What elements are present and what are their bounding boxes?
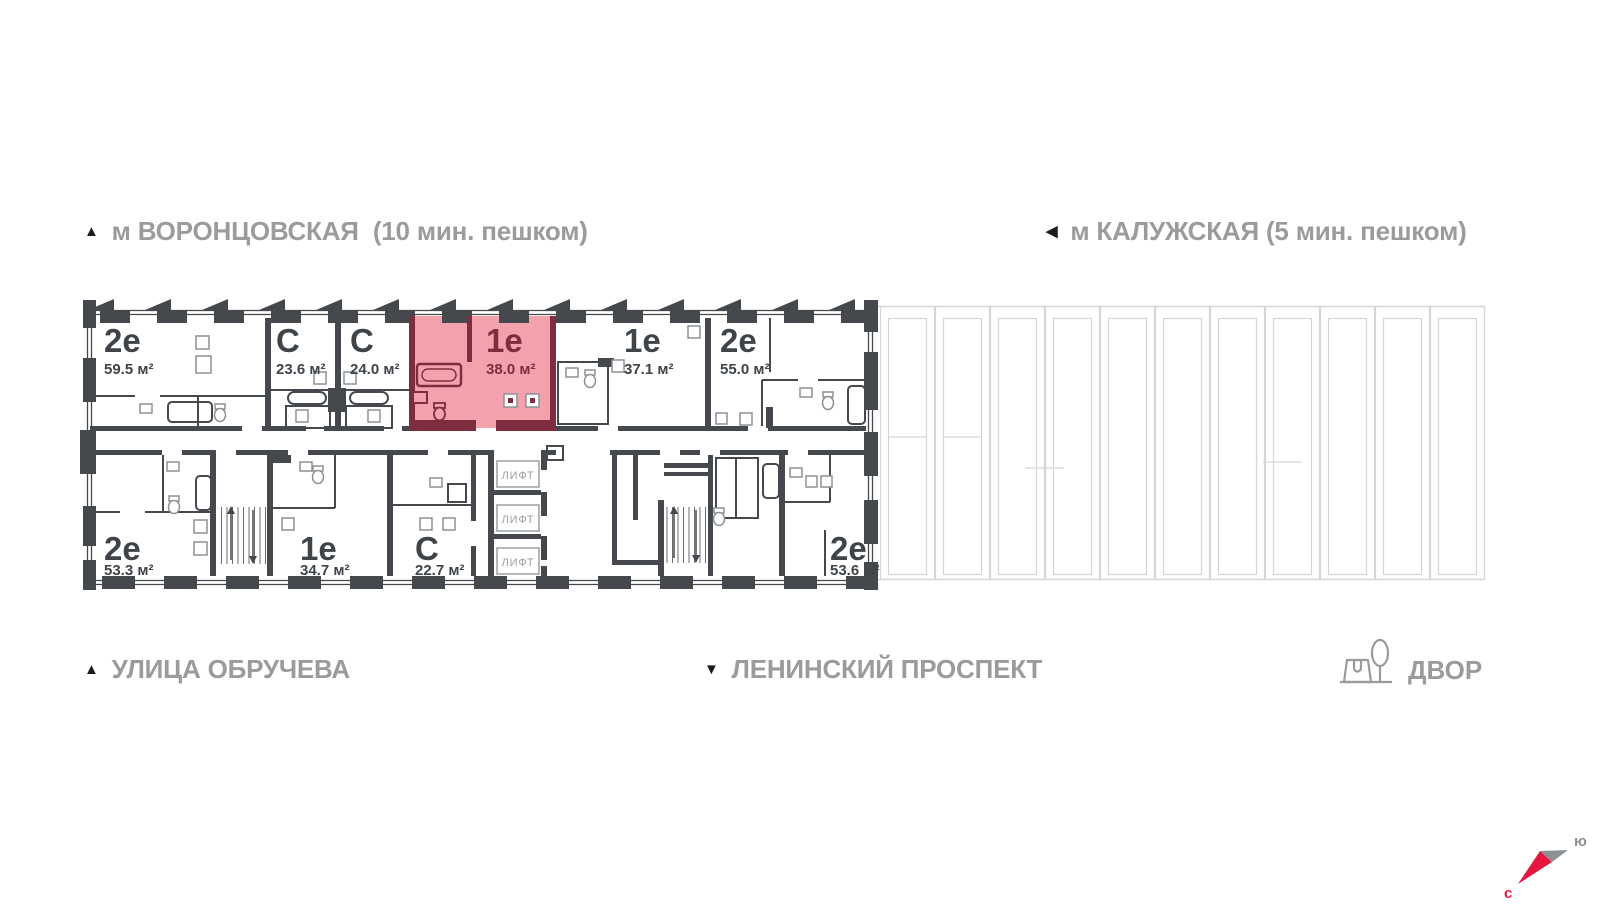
apartment-area: 55.0 м²: [720, 361, 769, 378]
adjacent-section-outline: [874, 306, 1485, 580]
staircase-left: [221, 506, 266, 564]
floorplan-page: ▲ м ВОРОНЦОВСКАЯ (10 мин. пешком) ◀ м КА…: [0, 0, 1600, 920]
apartment-type: 1е: [486, 322, 523, 359]
staircase-right: [664, 506, 707, 563]
apartment-type: С: [350, 322, 374, 359]
apartment-1e-34-7[interactable]: 1е 34.7 м²: [273, 455, 387, 579]
toilet-icon: [714, 508, 725, 526]
apartment-type: 1е: [624, 322, 661, 359]
apartment-area: 37.1 м²: [624, 361, 673, 378]
elevator-label: ЛИФТ: [502, 557, 535, 569]
apartment-2e-53-3[interactable]: 2е 53.3 м²: [92, 455, 210, 579]
floorplan-svg: ЛИФТ ЛИФТ ЛИФТ 2е 59.5 м² С 23.6 м² С 24…: [0, 0, 1600, 920]
apartment-s-24-0[interactable]: С 24.0 м²: [341, 318, 409, 426]
apartment-type: С: [276, 322, 300, 359]
apartment-area: 24.0 м²: [350, 361, 399, 378]
apartment-area: 59.5 м²: [104, 361, 153, 378]
apartment-type: 2е: [720, 322, 757, 359]
apartment-area: 22.7 м²: [415, 562, 464, 579]
apartment-1e-37-1[interactable]: 1е 37.1 м²: [556, 318, 705, 426]
elevator-label: ЛИФТ: [502, 470, 535, 482]
apartment-1e-38-0-highlighted[interactable]: 1е 38.0 м²: [409, 316, 556, 431]
apartment-area: 34.7 м²: [300, 562, 349, 579]
apartment-2e-59-5[interactable]: 2е 59.5 м²: [92, 318, 265, 426]
elevator-block: ЛИФТ ЛИФТ ЛИФТ: [497, 461, 539, 574]
apartment-area: 23.6 м²: [276, 361, 325, 378]
apartment-area: 38.0 м²: [486, 361, 535, 378]
apartment-s-23-6[interactable]: С 23.6 м²: [271, 318, 335, 426]
apartment-area: 53.6 м²: [830, 562, 879, 579]
elevator-label: ЛИФТ: [502, 514, 535, 526]
apartment-2e-55-0[interactable]: 2е 55.0 м²: [711, 318, 864, 426]
apartment-area: 53.3 м²: [104, 562, 153, 579]
apartment-s-22-7[interactable]: С 22.7 м²: [393, 455, 471, 579]
apartment-type: 2е: [104, 322, 141, 359]
